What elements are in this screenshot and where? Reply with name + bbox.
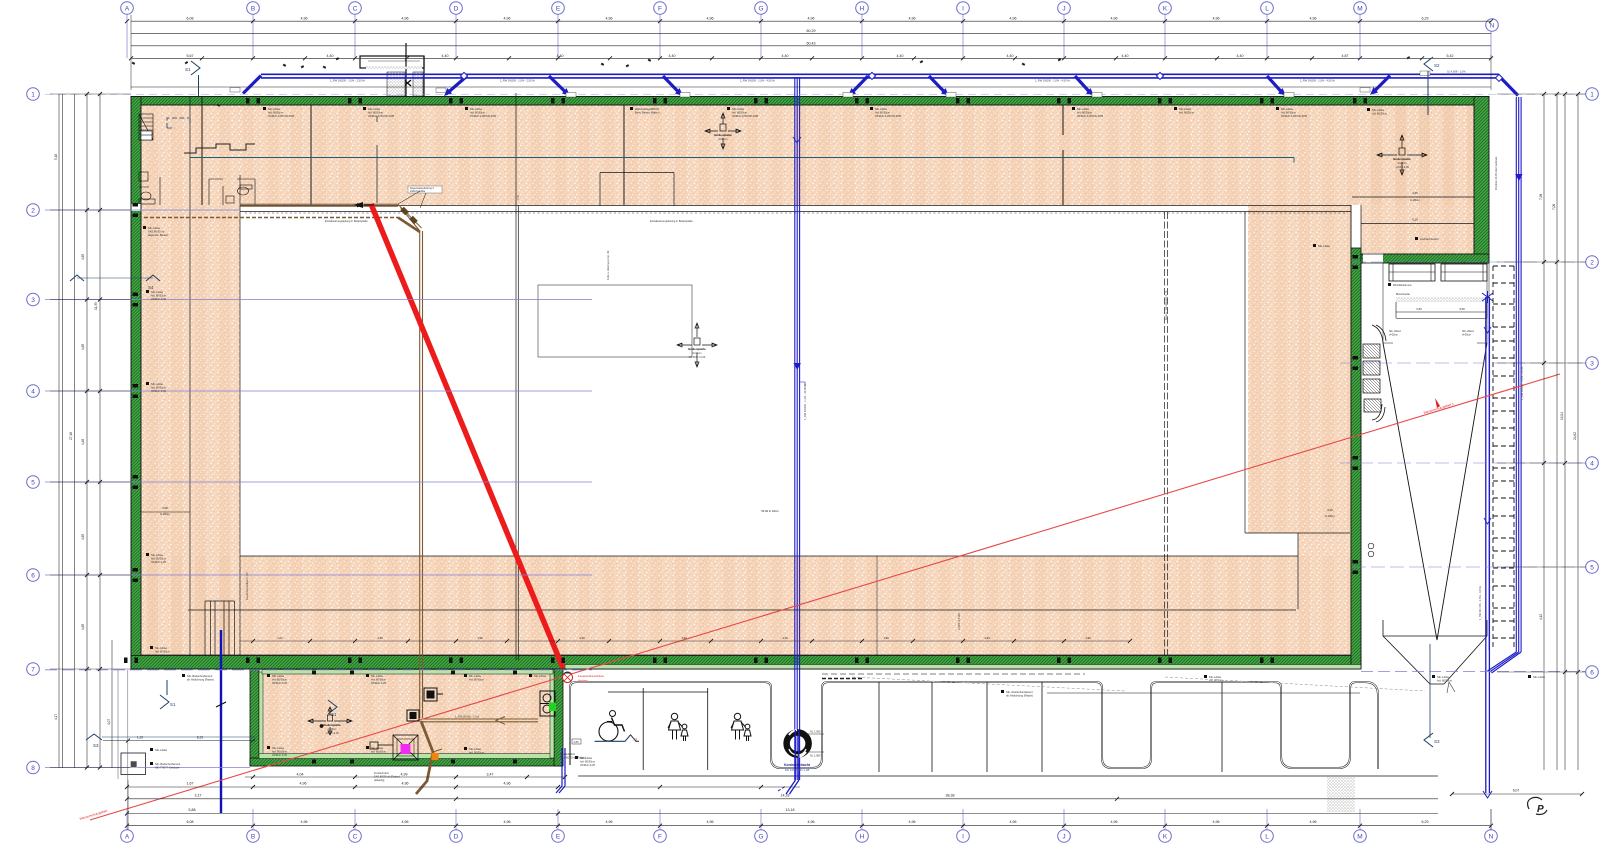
- svg-text:4,99: 4,99: [984, 636, 990, 640]
- svg-text:J: J: [1062, 5, 1065, 12]
- svg-text:Stb.-Hülse: Stb.-Hülse: [1372, 108, 1385, 112]
- svg-text:4,65: 4,65: [81, 254, 85, 260]
- svg-text:4,99: 4,99: [401, 773, 408, 777]
- svg-text:Stb.-Hülse: Stb.-Hülse: [732, 107, 745, 111]
- svg-text:H: H: [860, 833, 865, 840]
- svg-text:27,18: 27,18: [69, 432, 73, 440]
- svg-text:4,96: 4,96: [1310, 17, 1317, 21]
- svg-text:SL 4,568 - 1,0%: SL 4,568 - 1,0%: [1447, 70, 1466, 74]
- svg-text:4,96: 4,96: [707, 820, 714, 824]
- svg-text:J: J: [1062, 833, 1065, 840]
- svg-text:Hydrant: Hydrant: [578, 679, 588, 683]
- svg-text:OKRH=-0,35: OKRH=-0,35: [371, 681, 386, 685]
- svg-text:S4: S4: [148, 285, 154, 290]
- svg-text:1_RW DN200 - 1,1% - 30,06 l/s: 1_RW DN200 - 1,1% - 30,06 l/s: [803, 383, 807, 420]
- svg-text:3,08: 3,08: [162, 506, 168, 510]
- svg-text:2: 2: [1590, 259, 1594, 266]
- svg-text:4,96: 4,96: [504, 782, 511, 786]
- svg-text:1_SW DN100 - 1,0%: 1_SW DN100 - 1,0%: [455, 715, 480, 719]
- svg-text:60,29: 60,29: [807, 29, 816, 33]
- svg-text:4,40: 4,40: [782, 54, 789, 58]
- svg-text:C: C: [353, 5, 358, 12]
- svg-text:4,99: 4,99: [579, 636, 585, 640]
- svg-text:4,04: 4,04: [297, 773, 304, 777]
- svg-text:h/d: 80/30cm: h/d: 80/30cm: [580, 760, 595, 764]
- svg-text:8: 8: [31, 765, 35, 772]
- svg-text:6,08: 6,08: [187, 820, 194, 824]
- svg-text:4,40: 4,40: [1122, 54, 1129, 58]
- svg-text:OKRH=-0,35=OK-FFB: OKRH=-0,35=OK-FFB: [1281, 114, 1307, 118]
- svg-text:OKRH=-0,35: OKRH=-0,35: [272, 681, 287, 685]
- svg-text:4,96: 4,96: [1111, 17, 1118, 21]
- svg-text:Stb.-Hülse: Stb.-Hülse: [534, 674, 547, 678]
- svg-text:4: 4: [1590, 460, 1594, 467]
- svg-text:OKRH=-0,35=OK-FFB: OKRH=-0,35=OK-FFB: [732, 114, 758, 118]
- svg-text:1_SW DN 150 - 1,5% - 0,8 l/s: 1_SW DN 150 - 1,5% - 0,8 l/s: [1478, 585, 1482, 620]
- svg-text:2,39/5=0,5128: 2,39/5=0,5128: [957, 613, 961, 630]
- svg-text:4,96: 4,96: [808, 17, 815, 21]
- svg-text:OKRH=-0,35=OK-FFB: OKRH=-0,35=OK-FFB: [268, 114, 294, 118]
- svg-text:S3: S3: [633, 738, 637, 742]
- svg-text:1,67: 1,67: [187, 782, 194, 786]
- svg-text:5: 5: [31, 479, 35, 486]
- svg-text:4,96: 4,96: [1310, 820, 1317, 824]
- svg-text:L: L: [1265, 833, 1269, 840]
- svg-text:60,43: 60,43: [807, 41, 816, 45]
- svg-text:A: A: [125, 833, 130, 840]
- svg-text:4,96: 4,96: [300, 782, 307, 786]
- svg-text:Stb.-Hülse: Stb.-Hülse: [1077, 107, 1090, 111]
- svg-text:L: L: [1265, 5, 1269, 12]
- svg-text:Bodenplatte: Bodenplatte: [323, 723, 341, 727]
- svg-text:4,99: 4,99: [1085, 636, 1091, 640]
- svg-text:Rückfahrkamera: Rückfahrkamera: [1393, 284, 1412, 287]
- svg-text:M: M: [1357, 833, 1362, 840]
- svg-text:1: 1: [31, 91, 35, 98]
- svg-text:Hochfachsockel: Hochfachsockel: [1420, 237, 1439, 241]
- svg-text:S3: S3: [93, 743, 99, 748]
- svg-text:4,96: 4,96: [402, 17, 409, 21]
- svg-text:Stb.-Hülse: Stb.-Hülse: [368, 107, 381, 111]
- svg-text:S2: S2: [1434, 63, 1440, 68]
- svg-text:4,96: 4,96: [1010, 820, 1017, 824]
- svg-text:11,39: 11,39: [94, 302, 98, 310]
- svg-text:h/d: 80/30cm: h/d: 80/30cm: [151, 386, 166, 390]
- svg-text:h/d: 80/30cm: h/d: 80/30cm: [151, 294, 166, 298]
- svg-text:Stb.-Streifenfundament: Stb.-Streifenfundament: [1006, 690, 1033, 694]
- svg-text:5: 5: [1590, 564, 1594, 571]
- svg-text:Stb.-Hülse: Stb.-Hülse: [469, 674, 482, 678]
- svg-text:4,96: 4,96: [1213, 17, 1220, 21]
- svg-text:h/d: 80/30cm: h/d: 80/30cm: [368, 111, 383, 115]
- svg-text:H: H: [860, 5, 865, 12]
- svg-text:Stb.-Bodenfundament: Stb.-Bodenfundament: [155, 762, 181, 766]
- svg-text:h/d: 80/30cm: h/d: 80/30cm: [470, 111, 485, 115]
- svg-text:Feuerwehranschluss: Feuerwehranschluss: [578, 674, 604, 678]
- svg-text:3: 3: [1590, 360, 1594, 367]
- svg-text:SAS 80/30 ult (Radon): SAS 80/30 ult (Radon): [560, 756, 586, 760]
- svg-text:Stb.-Hülse: Stb.-Hülse: [151, 290, 164, 294]
- svg-text:alt: Abdichtung (Radon): alt: Abdichtung (Radon): [187, 678, 214, 682]
- svg-text:4,96: 4,96: [1010, 17, 1017, 21]
- svg-text:4,96: 4,96: [402, 820, 409, 824]
- svg-text:7,98: 7,98: [1539, 194, 1543, 200]
- svg-text:4,40: 4,40: [327, 54, 334, 58]
- svg-text:ln 20cm: ln 20cm: [1325, 514, 1335, 518]
- svg-text:S1: S1: [185, 67, 191, 72]
- svg-text:4,40: 4,40: [1007, 54, 1014, 58]
- svg-text:4,40: 4,40: [897, 54, 904, 58]
- svg-text:Firstlinie 23,45 über Gelände: Firstlinie 23,45 über Gelände: [1494, 156, 1498, 190]
- svg-text:Bituschwelle: Bituschwelle: [1396, 293, 1411, 296]
- svg-text:Stb.-Hülse: Stb.-Hülse: [1318, 244, 1331, 248]
- svg-text:4,40: 4,40: [442, 54, 449, 58]
- svg-text:3,00: 3,00: [1327, 508, 1333, 512]
- svg-text:h/d: 80/30cm: h/d: 80/30cm: [371, 678, 386, 682]
- svg-text:4,96: 4,96: [1111, 820, 1118, 824]
- svg-text:Stb.-Hülse: Stb.-Hülse: [875, 107, 888, 111]
- svg-text:Entwässerungsleitung in Bodenp: Entwässerungsleitung in Bodenplatte: [650, 219, 693, 223]
- svg-text:h/d: 80/30cm: h/d: 80/30cm: [1281, 111, 1296, 115]
- svg-text:6: 6: [31, 572, 35, 579]
- svg-text:1_RW DN200 - 1,0% - 4,50 l/s: 1_RW DN200 - 1,0% - 4,50 l/s: [740, 79, 776, 83]
- svg-text:E: E: [556, 5, 561, 12]
- svg-text:DN 1000, RD 1,08: DN 1000, RD 1,08: [785, 768, 810, 772]
- svg-text:OKRH=-0,35=OK-FFB: OKRH=-0,35=OK-FFB: [470, 114, 496, 118]
- svg-text:1_RW DN200 - 1,0% - 4,50 l/s: 1_RW DN200 - 1,0% - 4,50 l/s: [1300, 79, 1336, 83]
- svg-text:OKRH=-0,35: OKRH=-0,35: [580, 763, 595, 767]
- svg-text:C: C: [353, 833, 358, 840]
- svg-text:G: G: [758, 833, 763, 840]
- svg-text:Stb.-Hülse: Stb.-Hülse: [155, 748, 168, 752]
- svg-text:Stb.-Hülse: Stb.-Hülse: [155, 646, 168, 650]
- svg-text:K: K: [1163, 833, 1168, 840]
- svg-text:d=20cm: d=20cm: [719, 138, 728, 141]
- svg-text:14,28: 14,28: [781, 793, 790, 797]
- svg-text:d=20cm: d=20cm: [1389, 334, 1398, 337]
- svg-text:OKRH=-0,35: OKRH=-0,35: [272, 753, 287, 757]
- svg-text:1_RW DN200 - 1,0% - 2,50 l/s: 1_RW DN200 - 1,0% - 2,50 l/s: [330, 79, 366, 83]
- svg-text:4,65: 4,65: [81, 624, 85, 630]
- svg-text:1,02: 1,02: [277, 636, 283, 640]
- svg-text:Stb.-Hülse: Stb.-Hülse: [371, 746, 384, 750]
- svg-text:h/d: 80/30cm: h/d: 80/30cm: [371, 750, 386, 754]
- svg-text:1,10: 1,10: [137, 736, 143, 740]
- svg-text:I: I: [962, 5, 964, 12]
- svg-text:7,06: 7,06: [1552, 204, 1556, 210]
- svg-text:Frostschürze: Frostschürze: [560, 752, 576, 756]
- svg-text:h/d: 80/30cm: h/d: 80/30cm: [268, 111, 283, 115]
- svg-text:3,17: 3,17: [195, 793, 202, 797]
- svg-text:4,87: 4,87: [1342, 54, 1349, 58]
- svg-text:1: 1: [1590, 91, 1594, 98]
- svg-text:4,07: 4,07: [107, 719, 111, 725]
- svg-text:6,07: 6,07: [1513, 789, 1520, 793]
- svg-text:h/d: 80/30cm: h/d: 80/30cm: [1077, 111, 1092, 115]
- svg-text:1_RW DN200 - 1,0% - 2,50 l/s: 1_RW DN200 - 1,0% - 2,50 l/s: [500, 79, 536, 83]
- svg-text:Brett, Raster, Wabe o.: Brett, Raster, Wabe o.: [635, 111, 661, 115]
- svg-text:-0,627/-4,06: -0,627/-4,06: [1395, 166, 1409, 169]
- svg-text:4,96: 4,96: [808, 820, 815, 824]
- svg-text:4,99: 4,99: [681, 636, 687, 640]
- svg-text:Stb.-Hülse: Stb.-Hülse: [272, 746, 285, 750]
- svg-text:4,96: 4,96: [707, 17, 714, 21]
- svg-text:4,80: 4,80: [377, 636, 383, 640]
- svg-text:7,00: 7,00: [516, 194, 520, 200]
- svg-text:F: F: [658, 833, 662, 840]
- svg-text:24,62: 24,62: [1573, 432, 1577, 440]
- svg-text:K: K: [1163, 5, 1168, 12]
- svg-text:8,19: 8,19: [197, 736, 203, 740]
- svg-text:4,96: 4,96: [909, 17, 916, 21]
- svg-text:4,99: 4,99: [477, 636, 483, 640]
- svg-text:OK FFB ± 0,00: OK FFB ± 0,00: [689, 356, 706, 359]
- svg-text:d=20cm: d=20cm: [693, 352, 702, 355]
- svg-text:4,17: 4,17: [54, 714, 58, 720]
- svg-text:4,96: 4,96: [606, 820, 613, 824]
- svg-text:h/d: 80/30cm: h/d: 80/30cm: [151, 557, 166, 561]
- svg-text:Stb.-Hülse: Stb.-Hülse: [469, 747, 482, 751]
- svg-text:4,40: 4,40: [557, 54, 564, 58]
- svg-text:4,96: 4,96: [301, 820, 308, 824]
- svg-text:6,29: 6,29: [1412, 218, 1418, 222]
- svg-text:5,67: 5,67: [187, 54, 194, 58]
- svg-text:Fuge u. Verzahnung lt. St.: Fuge u. Verzahnung lt. St.: [1164, 290, 1168, 320]
- svg-text:Stb.-Hülse: Stb.-Hülse: [1209, 675, 1222, 679]
- svg-text:S1: S1: [170, 702, 176, 707]
- svg-text:4,65: 4,65: [81, 534, 85, 540]
- svg-text:Frostschürze: Frostschürze: [374, 771, 390, 775]
- svg-text:6,29: 6,29: [1422, 820, 1429, 824]
- svg-text:NL 1,080: NL 1,080: [810, 754, 821, 758]
- svg-text:D: D: [454, 833, 459, 840]
- svg-text:Stb.-Hülse: Stb.-Hülse: [148, 226, 161, 230]
- svg-text:6,08: 6,08: [187, 17, 194, 21]
- svg-text:4,40: 4,40: [669, 54, 676, 58]
- svg-text:Stb.-Hülse: Stb.-Hülse: [151, 382, 164, 386]
- svg-text:-0,627/-4,06: -0,627/-4,06: [325, 732, 339, 735]
- svg-text:Stb.-Hülse: Stb.-Hülse: [1437, 675, 1450, 679]
- svg-text:1_RW DN150 - 1,0% - 2,5 l/s: 1_RW DN150 - 1,0% - 2,5 l/s: [1520, 366, 1524, 400]
- svg-text:4,96: 4,96: [504, 820, 511, 824]
- svg-text:ln 20cm: ln 20cm: [160, 512, 170, 516]
- svg-text:N: N: [1489, 833, 1494, 840]
- svg-text:4,96: 4,96: [301, 17, 308, 21]
- svg-text:S1: S1: [331, 712, 337, 717]
- svg-text:3: 3: [31, 297, 35, 304]
- svg-text:M: M: [1357, 5, 1362, 12]
- svg-text:D: D: [454, 5, 459, 12]
- svg-text:h/d: 80/30cm: h/d: 80/30cm: [272, 750, 287, 754]
- svg-text:3,50: 3,50: [1459, 307, 1465, 311]
- svg-text:h/d: 80/30cm: h/d: 80/30cm: [155, 650, 170, 654]
- svg-text:6,29: 6,29: [1422, 17, 1429, 21]
- svg-text:Stb.-Hülse: Stb.-Hülse: [268, 107, 281, 111]
- svg-text:4,46: 4,46: [81, 439, 85, 445]
- svg-text:h/d: 80/30cm: h/d: 80/30cm: [469, 678, 484, 682]
- svg-text:SAS 80/30 ult (Radon): SAS 80/30 ult (Radon): [374, 775, 400, 779]
- svg-text:2: 2: [31, 207, 35, 214]
- svg-text:alt: Abdichtung (Radon): alt: Abdichtung (Radon): [1006, 694, 1033, 698]
- svg-text:5,88: 5,88: [189, 808, 196, 812]
- svg-text:38,38: 38,38: [946, 793, 955, 797]
- svg-text:Folie u. überzug el sp. 4R: Folie u. überzug el sp. 4R: [606, 250, 610, 280]
- svg-text:allgemein Bauteil: allgemein Bauteil: [148, 233, 168, 237]
- svg-text:Stb.-Hülse: Stb.-Hülse: [470, 107, 483, 111]
- svg-text:Wandvorlage/WDVS: Wandvorlage/WDVS: [635, 107, 659, 111]
- svg-text:S3: S3: [1434, 739, 1440, 744]
- svg-text:d=20cm: d=20cm: [328, 728, 337, 731]
- svg-text:Fallrohrgefälle: Fallrohrgefälle: [410, 190, 426, 193]
- svg-text:5,42: 5,42: [1447, 54, 1454, 58]
- svg-text:WD 77/077 Gebäude: WD 77/077 Gebäude: [155, 766, 180, 770]
- svg-text:Bodenplatte: Bodenplatte: [714, 133, 732, 137]
- svg-text:OKRH=-0,35: OKRH=-0,35: [151, 389, 166, 393]
- svg-text:h/d: 80/30cm: h/d: 80/30cm: [1209, 679, 1224, 683]
- svg-text:N: N: [1490, 22, 1495, 29]
- svg-text:d=20cm: d=20cm: [1462, 334, 1471, 337]
- svg-text:A: A: [125, 5, 130, 12]
- svg-text:13,18: 13,18: [786, 808, 795, 812]
- svg-text:4,80: 4,80: [574, 740, 580, 744]
- svg-text:19,04: 19,04: [1560, 412, 1564, 420]
- svg-text:4,96: 4,96: [402, 782, 409, 786]
- svg-text:Stb.-Bodenfundament: Stb.-Bodenfundament: [187, 674, 213, 678]
- svg-text:h/d: 80/30cm: h/d: 80/30cm: [875, 111, 890, 115]
- svg-text:h/d: 80/30cm: h/d: 80/30cm: [732, 111, 747, 115]
- svg-text:3,50: 3,50: [1416, 307, 1422, 311]
- svg-text:B: B: [251, 5, 255, 12]
- svg-text:Bodenplatte: Bodenplatte: [1393, 157, 1411, 161]
- svg-text:h/d: 80/30cm: h/d: 80/30cm: [1179, 111, 1194, 115]
- svg-text:Entwässerungsleitung in Bodenp: Entwässerungsleitung in Bodenplatte: [325, 219, 368, 223]
- svg-text:4,99: 4,99: [883, 636, 889, 640]
- svg-text:4,99: 4,99: [782, 636, 788, 640]
- svg-text:h/d: 80/30cm: h/d: 80/30cm: [1437, 679, 1452, 683]
- svg-text:Stb.-Hülse: Stb.-Hülse: [151, 553, 164, 557]
- svg-text:SAS 80-30 ult: SAS 80-30 ult: [148, 230, 164, 234]
- svg-text:Bodenplatte: Bodenplatte: [688, 347, 706, 351]
- svg-text:3,47: 3,47: [487, 773, 494, 777]
- svg-text:h/d: 80/30cm: h/d: 80/30cm: [1372, 112, 1387, 116]
- svg-text:Fussbodenaufbau lt. BS: Fussbodenaufbau lt. BS: [245, 572, 249, 600]
- svg-text:4,29: 4,29: [1412, 191, 1418, 195]
- svg-text:Stb.-Hülse: Stb.-Hülse: [1281, 107, 1294, 111]
- svg-text:4,96: 4,96: [1213, 820, 1220, 824]
- svg-text:OKRH=-0,35: OKRH=-0,35: [151, 297, 166, 301]
- svg-text:4,40: 4,40: [1237, 54, 1244, 58]
- svg-text:P: P: [1537, 804, 1544, 815]
- svg-text:4,65: 4,65: [81, 344, 85, 350]
- svg-text:Stb.-Hülse: Stb.-Hülse: [272, 674, 285, 678]
- svg-text:(allseitig): (allseitig): [374, 778, 385, 782]
- svg-text:I: I: [962, 833, 964, 840]
- svg-text:4: 4: [31, 388, 35, 395]
- svg-text:F: F: [658, 5, 662, 12]
- svg-text:OKRH=-0,35=OK-FFB: OKRH=-0,35=OK-FFB: [1077, 114, 1103, 118]
- svg-text:OKRH=-0,35: OKRH=-0,35: [151, 560, 166, 564]
- svg-text:4,96: 4,96: [504, 17, 511, 21]
- svg-text:Stb.-Hülse: Stb.-Hülse: [1533, 675, 1546, 679]
- svg-text:h/d: 80/30cm: h/d: 80/30cm: [272, 678, 287, 682]
- svg-text:OKRH=-0,35=OK-FFB: OKRH=-0,35=OK-FFB: [368, 114, 394, 118]
- svg-text:5,16: 5,16: [54, 154, 58, 160]
- svg-text:NL 1,065: NL 1,065: [810, 730, 821, 734]
- svg-text:1_RW DN200 - 1,0% - 4,50 l/s: 1_RW DN200 - 1,0% - 4,50 l/s: [1035, 79, 1071, 83]
- svg-text:OKRH=-0,35=OK-FFB: OKRH=-0,35=OK-FFB: [875, 114, 901, 118]
- svg-text:7: 7: [31, 666, 35, 673]
- svg-text:53,90 ln 18cm: 53,90 ln 18cm: [761, 509, 779, 513]
- svg-text:Stb.-Hülse: Stb.-Hülse: [1179, 107, 1192, 111]
- svg-text:ln 20cm: ln 20cm: [1410, 198, 1420, 202]
- svg-text:4,96: 4,96: [909, 820, 916, 824]
- svg-text:4,96: 4,96: [606, 17, 613, 21]
- svg-text:h/d: 80/30cm: h/d: 80/30cm: [469, 751, 484, 755]
- svg-text:6: 6: [1590, 669, 1594, 676]
- svg-text:B: B: [251, 833, 255, 840]
- svg-text:E: E: [556, 833, 561, 840]
- svg-text:d=20cm: d=20cm: [1398, 162, 1407, 165]
- svg-text:4,12: 4,12: [1539, 614, 1543, 620]
- svg-text:G: G: [758, 5, 763, 12]
- svg-text:Stb.-Hülse: Stb.-Hülse: [371, 674, 384, 678]
- svg-text:Kontrollschacht: Kontrollschacht: [784, 763, 811, 767]
